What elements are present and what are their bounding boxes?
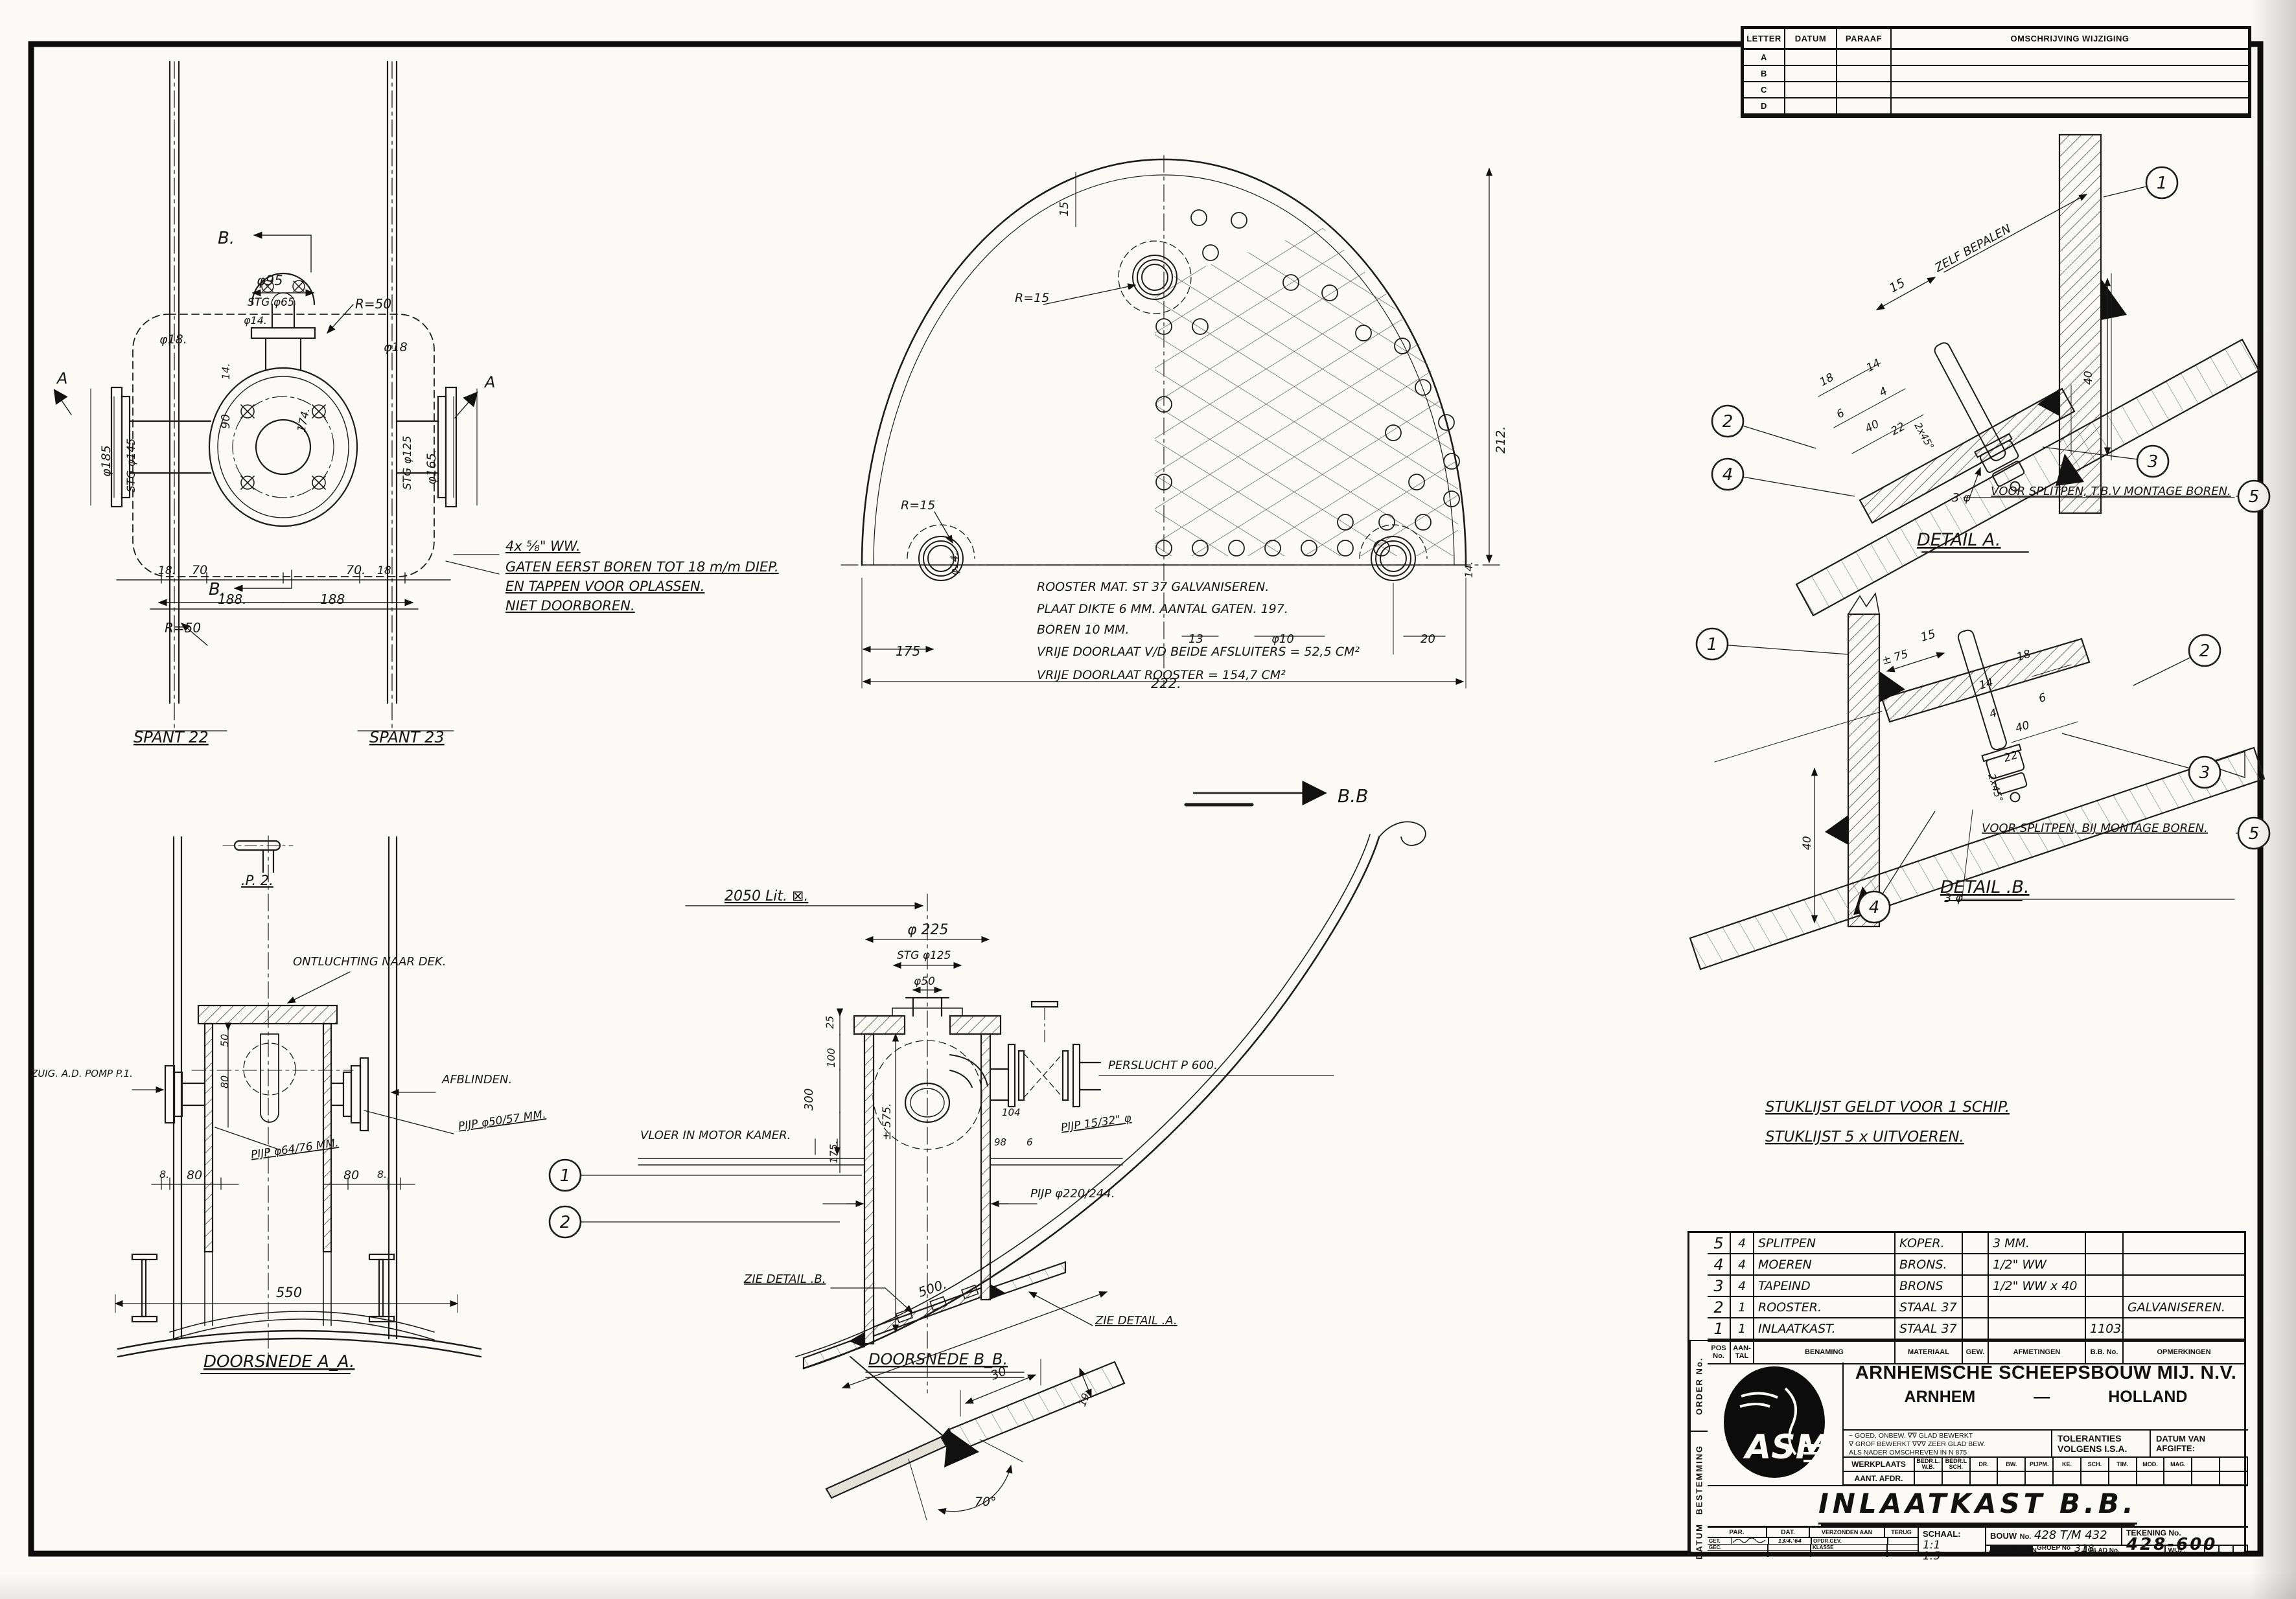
revision-row-C-omschrijving <box>1892 82 2248 98</box>
title-block: ORDER No. BESTEMMING DATUM 54SPLITPENKOP… <box>1687 1231 2246 1554</box>
parts-cell-1-bb: 11032 <box>2086 1318 2124 1340</box>
parts-cell-3-qty: 4 <box>1731 1276 1754 1297</box>
drawing-annotation: 2x45° <box>1912 420 1937 452</box>
drawing-annotation: VLOER IN MOTOR KAMER. <box>640 1129 791 1142</box>
revision-row-D-letter: D <box>1744 98 1785 115</box>
dept-cell-1: BEDR.L SCH. <box>1943 1458 1971 1472</box>
aant-cell-5 <box>2054 1472 2081 1486</box>
parts-cell-2-pos: 2 <box>1708 1297 1731 1318</box>
view-doorsnede-aa <box>115 836 861 1374</box>
drawing-annotation: 18 <box>1818 371 1837 389</box>
drawing-annotation: 90 <box>219 414 233 429</box>
drawing-annotation: φ185 <box>99 445 113 477</box>
drawing-annotation: 80 <box>218 1076 231 1088</box>
svg-text:1: 1 <box>560 1166 571 1186</box>
parts-cell-1-mat: STAAL 37 <box>1896 1318 1963 1340</box>
parts-cell-2-afm <box>1989 1297 2086 1318</box>
drawing-annotation: R=50 <box>165 620 201 636</box>
aant-afdr-row: AANT. AFDR. <box>1844 1472 2248 1486</box>
aant-cell-11 <box>2220 1472 2248 1486</box>
drawing-title: INLAATKAST B.B. <box>1818 1488 2137 1524</box>
afgifte-cell: DATUM VAN AFGIFTE: <box>2151 1431 2248 1458</box>
asm-logo: ASM <box>1708 1363 1841 1484</box>
dept-cell-10 <box>2192 1458 2220 1472</box>
drawing-annotation: 174. <box>295 407 312 433</box>
parts-cell-4-pos: 4 <box>1708 1254 1731 1276</box>
scan-shadow-right <box>2251 0 2296 1599</box>
aant-cell-3 <box>1998 1472 2026 1486</box>
parts-cell-5-pos: 5 <box>1708 1233 1731 1254</box>
parts-header-name: BENAMING <box>1754 1342 1896 1364</box>
parts-cell-4-qty: 4 <box>1731 1254 1754 1276</box>
svg-text:2: 2 <box>560 1213 571 1232</box>
drawing-annotation: ROOSTER MAT. ST 37 GALVANISEREN. <box>1037 580 1269 594</box>
view-spant-topview <box>54 62 499 731</box>
drawing-annotation: STUKLIJST GELDT VOOR 1 SCHIP. <box>1765 1099 2010 1116</box>
drawing-annotation: 300 <box>802 1088 816 1110</box>
parts-header-opm: OPMERKINGEN <box>2124 1342 2244 1364</box>
drawing-annotation: NIET DOORBOREN. <box>505 598 635 614</box>
drawing-annotation: B. <box>218 229 235 248</box>
blad-row: AANT. BLADEN BLAD No. WIJZ. <box>1986 1546 2248 1556</box>
parts-cell-5-afm: 3 MM. <box>1989 1233 2086 1254</box>
drawing-annotation: φ14. <box>948 552 960 575</box>
dept-cell-7: TIM. <box>2109 1458 2137 1472</box>
gez-label: GEZ. <box>1708 1551 1768 1557</box>
drawing-annotation: R=15 <box>1015 291 1049 305</box>
parts-cell-5-mat: KOPER. <box>1896 1233 1963 1254</box>
get-date: 13/4.'64 <box>1769 1538 1812 1544</box>
dept-cell-6: SCH. <box>2081 1458 2109 1472</box>
parts-cell-3-bb <box>2086 1276 2124 1297</box>
revision-row-C-datum <box>1785 82 1837 98</box>
company-country: HOLLAND <box>2108 1388 2187 1407</box>
drawing-annotation: 4 <box>1988 706 1999 720</box>
parts-cell-3-opm <box>2124 1276 2244 1297</box>
revision-row-A-letter: A <box>1744 50 1785 66</box>
bouw-cell: BOUW No. 428 T/M 432 GROEP No 318. <box>1986 1528 2122 1546</box>
aant-cell-1 <box>1943 1472 1971 1486</box>
drawing-annotation: φ14. <box>244 314 267 327</box>
blueprint-sheet: B.φ95STG φ65φ14.R=50φ18.φ18AAφ185STG φ14… <box>0 0 2296 1599</box>
dept-cell-11 <box>2220 1458 2248 1472</box>
aant-afdr-label: AANT. AFDR. <box>1844 1472 1915 1486</box>
drawing-annotation: φ50 <box>914 975 935 988</box>
drawing-annotation: 40 <box>2014 719 2032 735</box>
parts-cell-4-name: MOEREN <box>1754 1254 1896 1276</box>
revision-row-B-letter: B <box>1744 66 1785 82</box>
drawing-annotation: STG φ65 <box>248 296 295 309</box>
finish-line-3: ALS NADER OMSCHREVEN IN N 875 <box>1849 1449 2046 1457</box>
drawing-annotation: ZIE DETAIL .A. <box>1095 1314 1177 1328</box>
revision-header-omschrijving: OMSCHRIJVING WIJZIGING <box>1892 29 2248 50</box>
aant-cell-0 <box>1915 1472 1943 1486</box>
parts-cell-1-afm <box>1989 1318 2086 1340</box>
svg-text:3: 3 <box>2199 763 2210 783</box>
drawing-annotation: VOOR SPLITPEN, BIJ MONTAGE BOREN. <box>1982 822 2208 835</box>
drawing-annotation: φ10 <box>1271 632 1294 646</box>
drawing-annotation: BOREN 10 MM. <box>1037 623 1130 637</box>
drawing-annotation: 80 <box>343 1168 359 1182</box>
parts-cell-4-gew <box>1963 1254 1989 1276</box>
drawing-annotation: PLAAT DIKTE 6 MM. AANTAL GATEN. 197. <box>1037 602 1288 616</box>
bouw-no-label: No. <box>2020 1533 2032 1541</box>
drawing-annotation: ± 575. <box>881 1103 894 1141</box>
scan-shadow-bottom <box>0 1573 2296 1599</box>
revision-table: LETTER DATUM PARAAF OMSCHRIJVING WIJZIGI… <box>1741 26 2251 118</box>
drawing-annotation: 80 <box>187 1168 202 1182</box>
drawing-annotation: DETAIL A. <box>1917 530 2000 550</box>
revision-row-B-datum <box>1785 66 1837 82</box>
finish-line-1: ~ GOED, ONBEW. ∇∇ GLAD BEWERKT <box>1849 1432 2046 1440</box>
drawing-annotation: PERSLUCHT P 600. <box>1108 1059 1218 1072</box>
aant-bladen-label: AANT. BLADEN <box>1986 1546 2087 1556</box>
blad-no-label: BLAD No. <box>2087 1546 2165 1556</box>
revision-row-D-omschrijving <box>1892 98 2248 115</box>
drawing-annotation: STG φ125 <box>897 949 951 962</box>
drawing-annotation: ± 75 <box>1881 648 1910 668</box>
svg-text:2: 2 <box>2199 641 2210 661</box>
revision-row-B-omschrijving <box>1892 66 2248 82</box>
drawing-annotation: φ95 <box>257 273 283 288</box>
drawing-annotation: 70 <box>192 563 207 577</box>
parts-list-header: POS No. AAN- TAL BENAMING MATERIAAL GEW.… <box>1708 1340 2244 1364</box>
approval-block: PAR. DAT. VERZONDEN AAN TERUG GET. 13/4.… <box>1708 1528 1918 1556</box>
drawing-annotation: ZIE DETAIL .B. <box>743 1272 826 1286</box>
drawing-annotation: φ18 <box>384 340 408 354</box>
drawing-annotation: 40 <box>2082 371 2095 385</box>
dat-label: DAT. <box>1767 1528 1810 1537</box>
aant-cells <box>1915 1472 2248 1486</box>
balloon-2: 2 <box>1712 406 1816 448</box>
balloon-1: 1 <box>2104 167 2177 198</box>
schaal-label: SCHAAL: <box>1923 1529 1961 1539</box>
parts-header-gew: GEW. <box>1963 1342 1989 1364</box>
parts-cell-3-pos: 3 <box>1708 1276 1731 1297</box>
company-name: ARNHEMSCHE SCHEEPSBOUW MIJ. N.V. <box>1844 1363 2248 1384</box>
drawing-annotation: 70° <box>975 1495 997 1509</box>
get-signature <box>1732 1538 1769 1544</box>
si-label: S. I. <box>1811 1551 1888 1557</box>
drawing-annotation: GATEN EERST BOREN TOT 18 m/m DIEP. <box>505 559 779 575</box>
svg-text:4: 4 <box>1869 898 1880 917</box>
drawing-annotation: B.B <box>1338 785 1368 807</box>
drawing-annotation: DETAIL .B. <box>1940 877 2030 897</box>
parts-cell-2-qty: 1 <box>1731 1297 1754 1318</box>
bestemming-label: BESTEMMING <box>1689 1431 1708 1528</box>
bouw-label: BOUW <box>1990 1531 2017 1541</box>
parts-cell-2-gew <box>1963 1297 1989 1318</box>
werkplaats-label: WERKPLAATS <box>1844 1458 1915 1472</box>
drawing-annotation: 6 <box>1026 1136 1033 1148</box>
drawing-annotation: 188 <box>320 592 345 607</box>
company-cell: ARNHEMSCHE SCHEEPSBOUW MIJ. N.V. ARNHEM … <box>1844 1363 2248 1431</box>
drawing-annotation: ZUIG. A.D. POMP P.1. <box>30 1068 133 1079</box>
parts-header-bb: B.B. No. <box>2086 1342 2124 1364</box>
aant-cell-10 <box>2192 1472 2220 1486</box>
drawing-annotation: 70. <box>346 563 365 577</box>
drawing-annotation: .P. 2. <box>241 873 273 888</box>
drawing-annotation: VRIJE DOORLAAT V/D BEIDE AFSLUITERS = 52… <box>1037 645 1360 659</box>
order-no-label: ORDER No. <box>1689 1340 1708 1431</box>
drawing-annotation: 40 <box>1863 417 1882 435</box>
parts-cell-1-pos: 1 <box>1708 1318 1731 1340</box>
drawing-annotation: AFBLINDEN. <box>441 1073 512 1087</box>
view-detail-a <box>1796 135 2259 615</box>
tolerances-cell: TOLERANTIES VOLGENS I.S.A. <box>2052 1431 2151 1458</box>
drawing-annotation: PIJP φ220/244. <box>1030 1187 1115 1201</box>
drawing-annotation: 4 <box>1877 385 1890 400</box>
drawing-annotation: 15 <box>1919 627 1937 645</box>
revision-row-D-paraaf <box>1837 98 1892 115</box>
balloon-1: 1 <box>1697 628 1848 660</box>
parts-cell-1-name: INLAATKAST. <box>1754 1318 1896 1340</box>
drawing-annotation: EN TAPPEN VOOR OPLASSEN. <box>505 579 704 594</box>
drawing-annotation: 13 <box>1189 632 1203 646</box>
drawing-annotation: 2050 Lit. ⊠. <box>725 888 808 904</box>
svg-text:4: 4 <box>1722 465 1734 485</box>
revision-row-A-omschrijving <box>1892 50 2248 66</box>
svg-text:1: 1 <box>2157 174 2168 193</box>
werkplaats-row: WERKPLAATS BEDR.L. W.B.BEDR.L SCH.DR.BW.… <box>1844 1458 2248 1472</box>
drawing-annotation: VOOR SPLITPEN, T.B.V MONTAGE BOREN. <box>1991 485 2231 498</box>
parts-header-mat: MATERIAAL <box>1896 1342 1963 1364</box>
drawing-annotation: B. <box>209 580 226 599</box>
drawing-annotation: 100 <box>825 1048 837 1068</box>
revision-header-letter: LETTER <box>1744 29 1785 50</box>
verzonden-label: VERZONDEN AAN <box>1810 1528 1885 1537</box>
parts-cell-2-bb <box>2086 1297 2124 1318</box>
dept-cell-5: KE. <box>2054 1458 2081 1472</box>
drawing-annotation: VRIJE DOORLAAT ROOSTER = 154,7 CM² <box>1037 668 1286 682</box>
drawing-annotation: 50 <box>218 1034 231 1047</box>
revision-row-D-datum <box>1785 98 1837 115</box>
parts-cell-5-gew <box>1963 1233 1989 1254</box>
get-label: GET. <box>1708 1538 1732 1544</box>
dept-cell-0: BEDR.L. W.B. <box>1915 1458 1943 1472</box>
drawing-annotation: 15 <box>1887 275 1908 295</box>
drawing-annotation: 18. <box>158 564 176 577</box>
company-dash: — <box>2034 1388 2050 1407</box>
dept-cell-4: PIJPM. <box>2026 1458 2054 1472</box>
gec-label: GEC. <box>1708 1545 1768 1550</box>
drawing-annotation: 20 <box>1421 632 1435 646</box>
dept-cell-8: MOD. <box>2137 1458 2165 1472</box>
bouw-no: 428 T/M 432 <box>2034 1528 2107 1542</box>
parts-cell-1-qty: 1 <box>1731 1318 1754 1340</box>
parts-header-qty: AAN- TAL <box>1731 1342 1754 1364</box>
parts-cell-2-name: ROOSTER. <box>1754 1297 1896 1318</box>
view-detail-b <box>1690 593 2264 969</box>
parts-cell-4-bb <box>2086 1254 2124 1276</box>
parts-cell-3-name: TAPEIND <box>1754 1276 1896 1297</box>
drawing-annotation: ZELF BEPALEN <box>1932 222 2013 275</box>
parts-cell-3-mat: BRONS <box>1896 1276 1963 1297</box>
drawing-annotation: 6 <box>2037 691 2048 705</box>
drawing-annotation: DOORSNEDE A_A. <box>203 1352 354 1372</box>
drawing-annotation: 22 <box>1889 420 1908 438</box>
drawing-annotation: SPANT 23 <box>369 728 445 746</box>
drawing-annotation: A <box>56 369 67 387</box>
revision-header-paraaf: PARAAF <box>1837 29 1892 50</box>
drawing-title-cell: INLAATKAST B.B. <box>1708 1486 2248 1528</box>
drawing-annotation: PIJP φ50/57 MM. <box>458 1108 547 1133</box>
drawing-annotation: φ165. <box>424 449 439 485</box>
balloon-2: 2 <box>550 1206 840 1237</box>
revision-row-B-paraaf <box>1837 66 1892 82</box>
drawing-annotation: DOORSNEDE B_B. <box>868 1350 1008 1368</box>
datum-label: DATUM <box>1689 1528 1708 1556</box>
parts-cell-3-gew <box>1963 1276 1989 1297</box>
aant-cell-4 <box>2026 1472 2054 1486</box>
aant-cell-2 <box>1971 1472 1999 1486</box>
finish-line-2: ∇ GROF BEWERKT ∇∇∇ ZEER GLAD BEW. <box>1849 1440 2046 1449</box>
drawing-annotation: PIJP 15/32" φ <box>1060 1112 1133 1134</box>
klasse-label: KLASSE <box>1811 1545 1888 1550</box>
drawing-annotation: 175 <box>896 643 920 659</box>
schaal-cell: SCHAAL: 1:1 1:5 <box>1918 1528 1986 1556</box>
revision-row-C-letter: C <box>1744 82 1785 98</box>
aant-cell-7 <box>2109 1472 2137 1486</box>
opdr-label: OPDR.GEV. <box>1812 1538 1888 1544</box>
parts-header-pos: POS No. <box>1708 1342 1731 1364</box>
drawing-annotation: STG φ125 <box>401 436 414 490</box>
revision-row-A-datum <box>1785 50 1837 66</box>
drawing-annotation: A <box>483 373 495 391</box>
aant-cell-8 <box>2137 1472 2165 1486</box>
parts-cell-4-mat: BRONS. <box>1896 1254 1963 1276</box>
drawing-annotation: φ 225 <box>907 922 949 938</box>
parts-cell-5-qty: 4 <box>1731 1233 1754 1254</box>
dept-cell-3: BW. <box>1998 1458 2026 1472</box>
drawing-annotation: 14. <box>220 363 232 380</box>
drawing-annotation: 4x ⅝" WW. <box>505 538 581 554</box>
drawing-annotation: 175. <box>828 1140 840 1164</box>
schaal-2: 1:5 <box>1923 1551 1981 1562</box>
drawing-annotation: 8. <box>159 1168 169 1180</box>
parts-header-afm: AFMETINGEN <box>1989 1342 2086 1364</box>
company-city: ARNHEM <box>1905 1388 1976 1407</box>
parts-cell-2-opm: GALVANISEREN. <box>2124 1297 2244 1318</box>
logo-cell: ASM <box>1708 1363 1844 1486</box>
drawing-annotation: 98 <box>994 1136 1006 1148</box>
svg-text:1: 1 <box>1707 635 1718 654</box>
drawing-annotation: 550 <box>276 1285 302 1300</box>
drawing-annotation: ONTLUCHTING NAAR DEK. <box>293 955 446 969</box>
parts-cell-5-name: SPLITPEN <box>1754 1233 1896 1254</box>
parts-cell-4-opm <box>2124 1254 2244 1276</box>
par-label: PAR. <box>1708 1528 1767 1537</box>
drawing-annotation: 15 <box>1058 201 1071 216</box>
aant-cell-6 <box>2081 1472 2109 1486</box>
drawing-annotation: 14 <box>1864 356 1883 374</box>
parts-cell-4-afm: 1/2" WW <box>1989 1254 2086 1276</box>
svg-text:3: 3 <box>2148 452 2159 472</box>
parts-cell-5-bb <box>2086 1233 2124 1254</box>
revision-row-C-paraaf <box>1837 82 1892 98</box>
dept-cell-9: MAG. <box>2164 1458 2192 1472</box>
dept-cell-2: DR. <box>1971 1458 1999 1472</box>
aant-cell-9 <box>2164 1472 2192 1486</box>
drawing-annotation: SPANT 22 <box>133 728 209 746</box>
svg-text:2: 2 <box>1722 412 1734 431</box>
drawing-annotation: φ18. <box>159 332 187 347</box>
revision-header-datum: DATUM <box>1785 29 1837 50</box>
revision-row-A-paraaf <box>1837 50 1892 66</box>
wijz-label: WIJZ. <box>2166 1546 2206 1556</box>
parts-cell-2-mat: STAAL 37 <box>1896 1297 1963 1318</box>
balloon-3: 3 <box>2062 733 2220 788</box>
drawing-annotation: 40 <box>1801 836 1814 850</box>
drawing-annotation: 3 φ <box>1952 491 1971 505</box>
parts-cell-1-gew <box>1963 1318 1989 1340</box>
drawing-annotation: 18 <box>377 564 391 577</box>
drawing-annotation: 6 <box>1835 407 1847 422</box>
parts-cell-3-afm: 1/2" WW x 40 <box>1989 1276 2086 1297</box>
drawing-annotation: 2x45° <box>1986 772 2005 803</box>
drawing-annotation: 14. <box>1463 562 1475 578</box>
drawing-annotation: 104 <box>1002 1107 1021 1118</box>
drawing-annotation: 212. <box>1494 426 1508 454</box>
drawing-annotation: 25 <box>824 1016 836 1029</box>
parts-cell-5-opm <box>2124 1233 2244 1254</box>
drawing-annotation: STG φ145 <box>125 439 138 492</box>
terug-label: TERUG <box>1885 1528 1918 1537</box>
drawing-annotation: STUKLIJST 5 x UITVOEREN. <box>1765 1129 1964 1145</box>
parts-list: 54SPLITPENKOPER.3 MM.44MOERENBRONS.1/2" … <box>1708 1233 2244 1340</box>
parts-cell-1-opm <box>2124 1318 2244 1340</box>
drawing-annotation: R=50 <box>355 296 391 312</box>
tekening-cell: TEKENING No. 428-600 <box>2122 1528 2248 1546</box>
drawing-annotation: 8. <box>377 1168 387 1180</box>
balloon-4: 4 <box>1712 459 1855 496</box>
finish-notes-cell: ~ GOED, ONBEW. ∇∇ GLAD BEWERKT ∇ GROF BE… <box>1844 1431 2052 1458</box>
drawing-annotation: R=15 <box>901 498 935 512</box>
balloon-2: 2 <box>2133 635 2220 685</box>
dept-cells: BEDR.L. W.B.BEDR.L SCH.DR.BW.PIJPM.KE.SC… <box>1915 1458 2248 1472</box>
